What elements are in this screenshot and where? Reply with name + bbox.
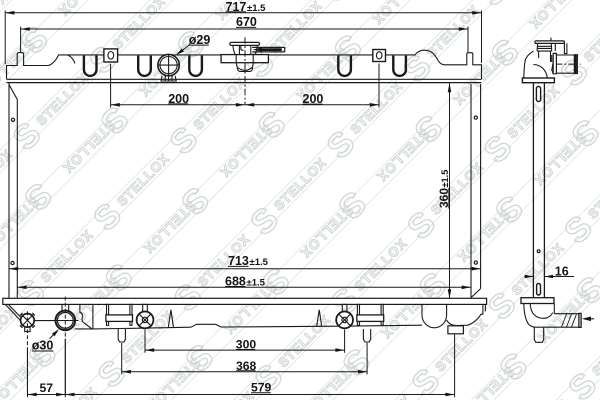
- svg-text:±1.5: ±1.5: [440, 170, 450, 188]
- svg-text:±1.5: ±1.5: [247, 3, 266, 14]
- svg-text:±1.5: ±1.5: [247, 277, 266, 288]
- svg-text:57: 57: [40, 381, 54, 395]
- svg-text:16: 16: [555, 264, 569, 278]
- svg-text:±1.5: ±1.5: [250, 257, 269, 268]
